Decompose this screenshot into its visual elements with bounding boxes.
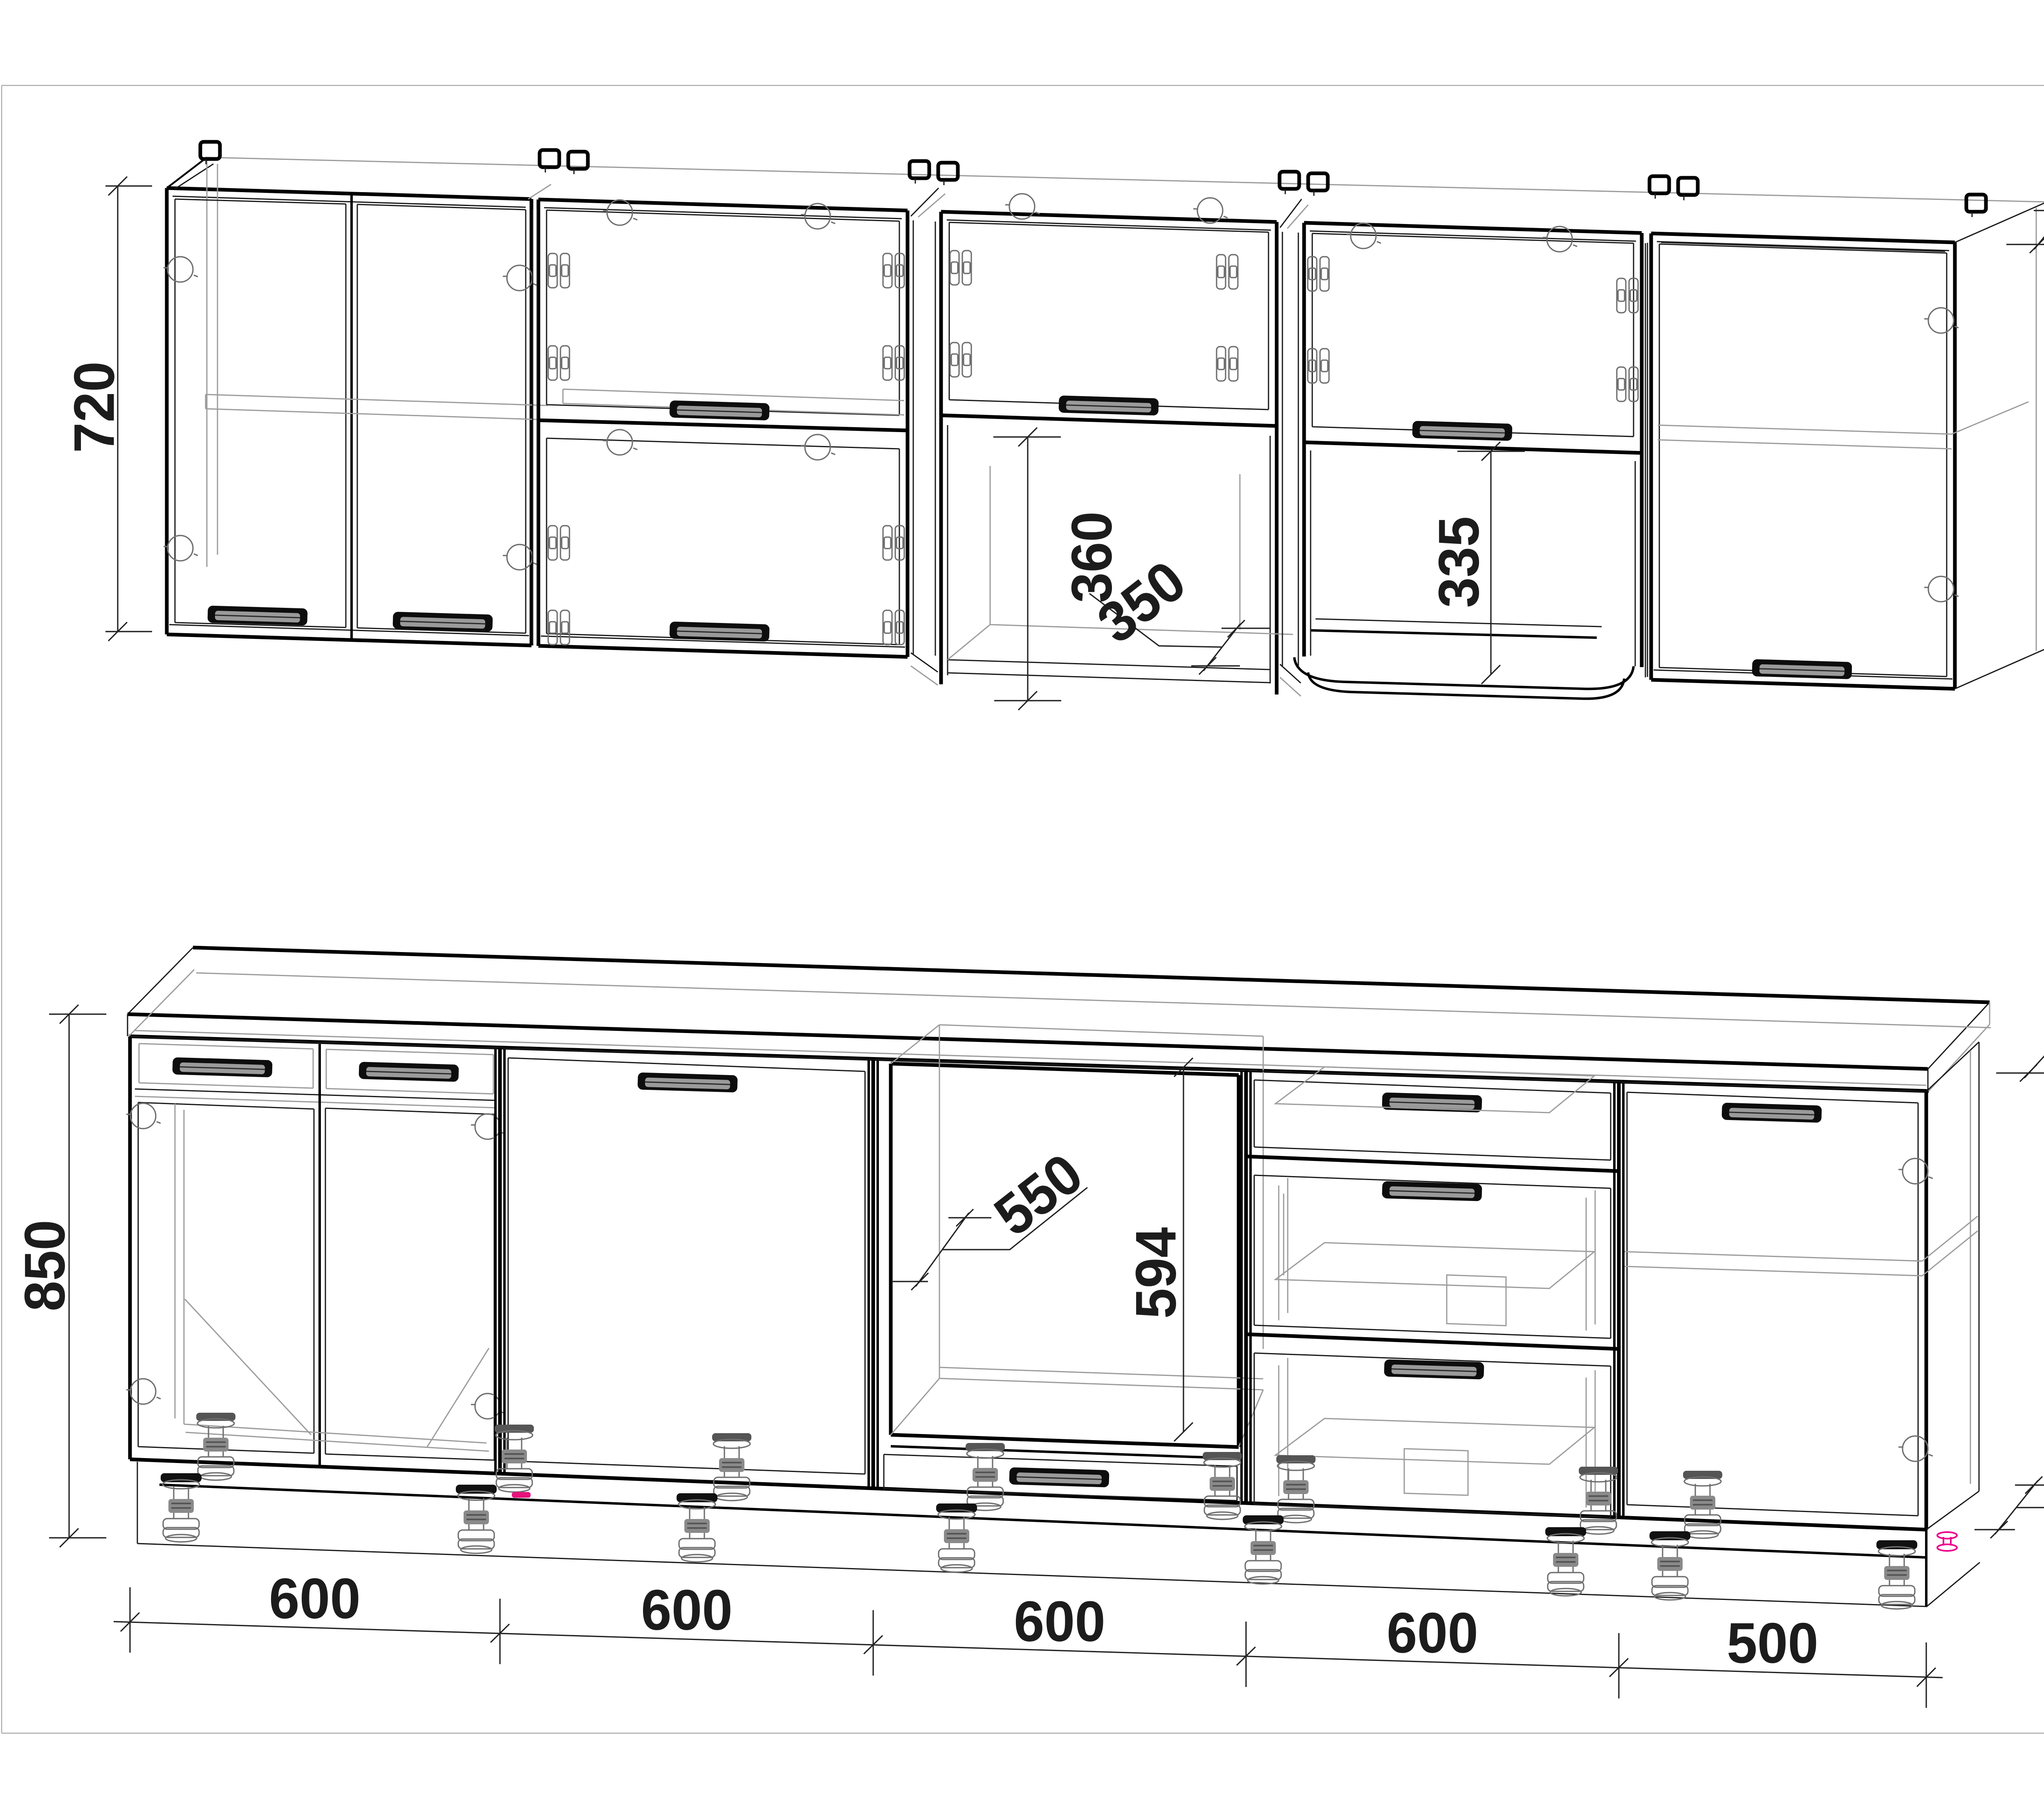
svg-text:335: 335	[1427, 516, 1491, 608]
svg-text:600: 600	[1387, 1601, 1478, 1665]
svg-text:850: 850	[13, 1220, 77, 1311]
svg-text:720: 720	[62, 361, 126, 453]
svg-text:600: 600	[269, 1566, 361, 1631]
svg-text:594: 594	[1124, 1227, 1188, 1319]
svg-text:500: 500	[1727, 1611, 1818, 1675]
svg-text:600: 600	[1014, 1589, 1105, 1653]
svg-text:600: 600	[641, 1578, 733, 1642]
